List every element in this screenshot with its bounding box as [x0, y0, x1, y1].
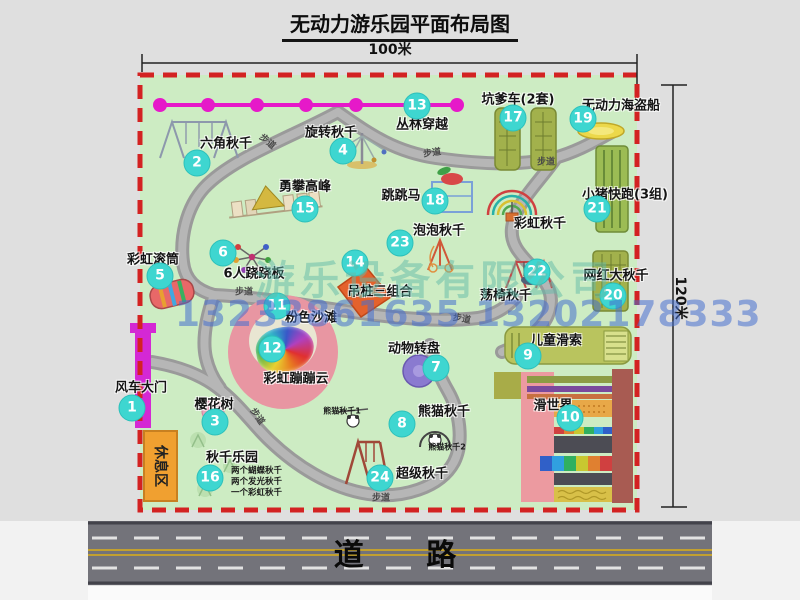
attraction-badge-24: 24 [367, 465, 394, 492]
attraction-badge-1: 1 [119, 395, 146, 422]
walkway-label: 步道 [537, 155, 555, 168]
attraction-badge-2: 2 [184, 150, 211, 177]
rest-area-box: 休息区 [143, 430, 178, 502]
page-title: 无动力游乐园平面布局图 [282, 8, 518, 42]
park-layout-map: 休息区 无动力游乐园平面布局图 100米 120米 道 路 风车大门 六角秋千 … [0, 0, 800, 600]
attraction-badge-16: 16 [197, 465, 224, 492]
panda-swing-1-label: 熊猫秋千1 [323, 406, 361, 417]
attraction-label-swing-park: 秋千乐园 [206, 447, 258, 466]
attraction-label-bubble-swing: 泡泡秋千 [413, 220, 465, 239]
attraction-badge-18: 18 [422, 188, 449, 215]
attraction-badge-3: 3 [202, 409, 229, 436]
attraction-badge-7: 7 [423, 355, 450, 382]
swing-park-note-3: 一个彩虹秋千 [231, 488, 282, 499]
attraction-label-jumping-horse: 跳跳马 [381, 185, 420, 204]
attraction-label-rainbow-bounce-cloud: 彩虹蹦蹦云 [263, 368, 328, 387]
attraction-badge-8: 8 [389, 411, 416, 438]
attraction-label-peak-climbing: 勇攀高峰 [279, 176, 331, 195]
attraction-label-rotating-swing: 旋转秋千 [305, 122, 357, 141]
attraction-badge-19: 19 [570, 106, 597, 133]
watermark-phone: 13233861635 13202178333 [175, 294, 762, 335]
attraction-badge-13: 13 [404, 93, 431, 120]
attraction-badge-10: 10 [557, 405, 584, 432]
attraction-badge-6: 6 [210, 240, 237, 267]
attraction-badge-15: 15 [292, 196, 319, 223]
attraction-label-windmill-gate: 风车大门 [115, 377, 167, 396]
attraction-label-super-swing: 超级秋千 [396, 463, 448, 482]
walkway-label: 步道 [422, 144, 442, 159]
swing-park-notes: 两个蝴蝶秋千 两个发光秋千 一个彩虹秋千 [231, 466, 282, 499]
swing-park-note-2: 两个发光秋千 [231, 477, 282, 488]
attraction-label-panda-swing: 熊猫秋千 [418, 401, 470, 420]
attraction-label-rainbow-swing: 彩虹秋千 [514, 213, 566, 232]
panda-swing-2-label: 熊猫秋千2 [428, 442, 466, 453]
width-dimension-label: 100米 [368, 39, 411, 59]
attraction-badge-5: 5 [147, 263, 174, 290]
walkway-label: 步道 [372, 491, 390, 504]
attraction-badge-9: 9 [515, 343, 542, 370]
road-label: 道 路 [334, 530, 482, 574]
attraction-label-hexagon-swing: 六角秋千 [200, 133, 252, 152]
attraction-badge-17: 17 [500, 105, 527, 132]
swing-park-note-1: 两个蝴蝶秋千 [231, 466, 282, 477]
attraction-badge-4: 4 [330, 138, 357, 165]
rest-area-label: 休息区 [151, 445, 171, 487]
attraction-badge-12: 12 [259, 336, 286, 363]
attraction-badge-21: 21 [584, 196, 611, 223]
attraction-label-animal-turntable: 动物转盘 [388, 338, 440, 357]
